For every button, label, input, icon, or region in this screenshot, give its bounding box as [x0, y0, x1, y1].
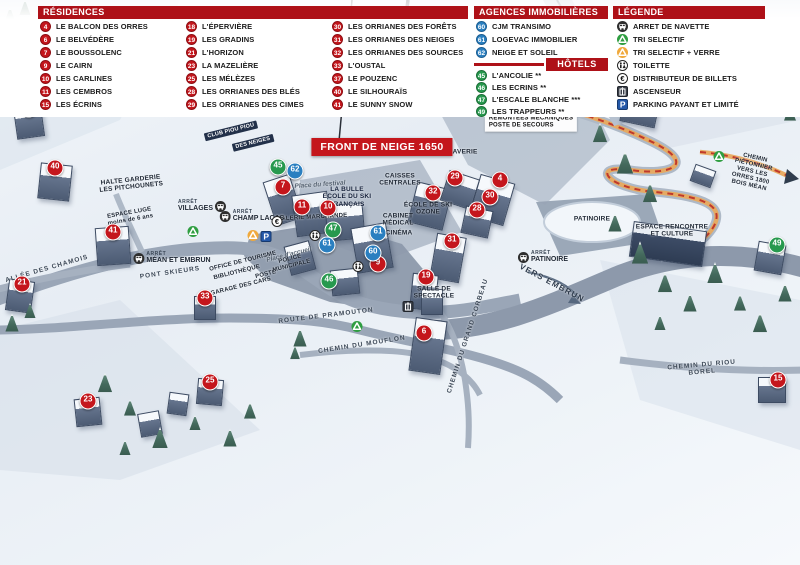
legend-item-number: 33 [332, 60, 343, 71]
legend-item-label: LOGEVAC IMMOBILIER [492, 35, 577, 44]
legend-item-label: LE SUNNY SNOW [348, 100, 413, 109]
legend-item-les-orrianes-des-neiges: 31LES ORRIANES DES NEIGES [332, 33, 455, 45]
legende-header: LÉGENDE [613, 6, 765, 19]
parking-icon: P [261, 231, 272, 242]
map-marker-41: 41 [105, 224, 122, 241]
map-marker-62: 62 [287, 163, 304, 180]
legend-item-label: ASCENSEUR [633, 87, 681, 96]
map-lift-icon [403, 299, 414, 317]
legend-item-l-horizon: 21L'HORIZON [186, 46, 244, 58]
legend-item-les-orrianes-des-for-ts: 30LES ORRIANES DES FORÊTS [332, 20, 457, 32]
bus-stop-icon [518, 252, 529, 263]
wc-icon [310, 230, 321, 241]
legend-item-number: 40 [332, 86, 343, 97]
map-marker-10: 10 [320, 200, 337, 217]
map-recycle-icon [188, 224, 199, 242]
legend-item-label: LES ÉCRINS [56, 100, 102, 109]
legend-item-label: LES GRADINS [202, 35, 254, 44]
legend-item-number: 60 [476, 21, 487, 32]
legend-item-label: L'ESCALE BLANCHE *** [492, 95, 580, 104]
legend-item-label: CJM TRANSIMO [492, 22, 551, 31]
bus-icon [617, 21, 628, 32]
map-marker-49: 49 [769, 237, 786, 254]
legend-item-le-cairn: 9LE CAIRN [40, 59, 92, 71]
legend-item-l-escale-blanche: 47L'ESCALE BLANCHE *** [476, 93, 580, 105]
map-label-espace-rencontre: ESPACE RENCONTRE ET CULTURE [636, 224, 708, 239]
legend-item-l-pervi-re: 18L'ÉPERVIÈRE [186, 20, 252, 32]
map-label-cole-de-ski: ÉCOLE DE SKI OZONE [404, 202, 452, 217]
legend-item-label: LES MÉLÈZES [202, 74, 255, 83]
recycle-icon [617, 34, 628, 45]
legend-item-label: DISTRIBUTEUR DE BILLETS [633, 74, 737, 83]
wc-icon [617, 60, 628, 71]
legend-item-la-mazeli-re: 23LA MAZELIÈRE [186, 59, 258, 71]
legend-item-label: LES ORRIANES DES BLÉS [202, 87, 300, 96]
parking-icon: P [617, 99, 628, 110]
legend-item-number: 21 [186, 47, 197, 58]
legend-item-number: 18 [186, 21, 197, 32]
bus-stop-name: MÉAN ET EMBRUN [146, 257, 210, 264]
resort-map-poster: ESPACE LUGE à partir de 7 ansTÉLÉSKI DU … [0, 0, 800, 565]
legend-item-label: TOILETTE [633, 61, 670, 70]
legend-item-label: LE BELVÉDÈRE [56, 35, 114, 44]
legend-item-neige-et-soleil: 62NEIGE ET SOLEIL [476, 46, 558, 58]
legend-item-les-trappeurs: 49LES TRAPPEURS ** [476, 106, 564, 118]
legend-item-le-boussolenc: 7LE BOUSSOLENC [40, 46, 122, 58]
map-marker-6: 6 [416, 325, 433, 342]
map-marker-31: 31 [444, 233, 461, 250]
map-marker-28: 28 [469, 202, 486, 219]
legend-item-number: 32 [332, 47, 343, 58]
legend-item-label: L'OUSTAL [348, 61, 385, 70]
legend-item-les-m-l-zes: 25LES MÉLÈZES [186, 72, 255, 84]
map-marker-61: 61 [370, 225, 387, 242]
legend-item-number: 23 [186, 60, 197, 71]
legend-item-les-cembros: 11LES CEMBROS [40, 86, 112, 98]
legend-item-label: LE BOUSSOLENC [56, 48, 122, 57]
legend-item-label: L'HORIZON [202, 48, 244, 57]
residences-header: RÉSIDENCES [38, 6, 468, 19]
map-marker-30: 30 [482, 189, 499, 206]
map-label-salle-de: SALLE DE SPECTACLE [414, 286, 455, 301]
map-label-patinoire: PATINOIRE [574, 215, 610, 222]
lift-icon [617, 86, 628, 97]
legend-item-number: 9 [40, 60, 51, 71]
legend-item-ascenseur: ASCENSEUR [617, 85, 681, 97]
legend-item-number: 28 [186, 86, 197, 97]
map-label-laverie: LAVERIE [448, 148, 477, 155]
legend-item-number: 37 [332, 73, 343, 84]
legend-item-number: 19 [186, 34, 197, 45]
legend-item-les-crins: 15LES ÉCRINS [40, 99, 102, 111]
legend-item-number: 11 [40, 86, 51, 97]
legend-item-parking-payant-et-limit: PPARKING PAYANT ET LIMITÉ [617, 98, 739, 110]
legend-item-label: LES ORRIANES DES FORÊTS [348, 22, 457, 31]
legend-item-les-gradins: 19LES GRADINS [186, 33, 254, 45]
bus-stop-icon [133, 253, 144, 264]
svg-text:P: P [263, 232, 269, 242]
legend-item-arret-de-navette: ARRET DE NAVETTE [617, 20, 709, 32]
legend-item-number: 6 [40, 34, 51, 45]
map-recycle-icon [352, 319, 363, 337]
map-marker-46: 46 [321, 273, 338, 290]
legend-item-number: 62 [476, 47, 487, 58]
legend-item-label: LA MAZELIÈRE [202, 61, 258, 70]
map-marker-32: 32 [425, 185, 442, 202]
legend-item-label: LES CARLINES [56, 74, 112, 83]
map-marker-40: 40 [47, 160, 64, 177]
hotels-header: HÔTELS [546, 58, 608, 71]
legend-item-le-pouzenc: 37LE POUZENC [332, 72, 397, 84]
legend-item-l-ancolie: 45L'ANCOLIE ** [476, 69, 541, 81]
legend-item-les-orrianes-des-cimes: 29LES ORRIANES DES CIMES [186, 99, 304, 111]
legend-panel: RÉSIDENCES AGENCES IMMOBILIÈRES LÉGENDE … [0, 0, 800, 117]
wc-icon [353, 261, 364, 272]
map-marker-4: 4 [492, 172, 509, 189]
bus-stop-icon [220, 211, 231, 222]
legend-item-number: 29 [186, 99, 197, 110]
legend-item-label: L'ÉPERVIÈRE [202, 22, 252, 31]
map-recycle-icon [714, 149, 725, 167]
triverre-icon [248, 230, 259, 241]
legend-item-label: LES ORRIANES DES CIMES [202, 100, 304, 109]
legend-item-le-balcon-des-orres: 4LE BALCON DES ORRES [40, 20, 148, 32]
legend-item-le-belv-d-re: 6LE BELVÉDÈRE [40, 33, 114, 45]
legend-item-number: 47 [476, 94, 487, 105]
agences-header: AGENCES IMMOBILIÈRES [474, 6, 608, 19]
map-triverre-icon [248, 228, 259, 246]
legend-item-number: 7 [40, 47, 51, 58]
legend-item-number: 45 [476, 70, 487, 81]
legend-item-number: 49 [476, 106, 487, 117]
map-parking-icon: P [261, 229, 272, 247]
legend-item-number: 10 [40, 73, 51, 84]
map-marker-45: 45 [270, 159, 287, 176]
bus-stop-name: PATINOIRE [531, 256, 568, 263]
bus-stop-m-an-et-embrun: ARRÊTMÉAN ET EMBRUN [133, 252, 210, 264]
map-marker-23: 23 [80, 393, 97, 410]
map-marker-25: 25 [202, 374, 219, 391]
legend-item-number: 4 [40, 21, 51, 32]
map-label-cin-ma: CINÉMA [386, 229, 413, 236]
legend-item-les-carlines: 10LES CARLINES [40, 72, 112, 84]
legend-item-label: LE BALCON DES ORRES [56, 22, 148, 31]
map-marker-29: 29 [447, 170, 464, 187]
legend-item-distributeur-de-billets: €DISTRIBUTEUR DE BILLETS [617, 72, 737, 84]
bus-stop-name: VILLAGES [178, 205, 213, 212]
euro-icon: € [272, 216, 283, 227]
legend-item-le-sunny-snow: 41LE SUNNY SNOW [332, 99, 413, 111]
legend-item-tri-selectif: TRI SELECTIF [617, 33, 685, 45]
map-building [167, 392, 190, 417]
triverre-icon [617, 47, 628, 58]
svg-text:P: P [620, 99, 626, 109]
legend-item-tri-selectif-verre: TRI SELECTIF + VERRE [617, 46, 720, 58]
legend-item-label: LES ECRINS ** [492, 83, 546, 92]
lift-icon [403, 301, 414, 312]
legend-item-label: LE CAIRN [56, 61, 92, 70]
legend-item-label: LE POUZENC [348, 74, 397, 83]
map-label-caisses: CAISSES CENTRALES [379, 173, 421, 188]
map-marker-61: 61 [319, 237, 336, 254]
map-marker-60: 60 [365, 245, 382, 262]
legend-item-number: 15 [40, 99, 51, 110]
euro-icon: € [617, 73, 628, 84]
legend-item-label: LES ORRIANES DES NEIGES [348, 35, 455, 44]
legend-item-number: 41 [332, 99, 343, 110]
map-marker-11: 11 [294, 199, 311, 216]
bus-stop-patinoire: ARRÊTPATINOIRE [518, 251, 568, 263]
legend-item-number: 30 [332, 21, 343, 32]
legend-item-number: 46 [476, 82, 487, 93]
bus-stop-text: ARRÊTMÉAN ET EMBRUN [146, 252, 210, 264]
map-marker-33: 33 [197, 290, 214, 307]
legend-item-label: TRI SELECTIF [633, 35, 685, 44]
map-marker-7: 7 [275, 179, 292, 196]
front-de-neige-banner: FRONT DE NEIGE 1650 [311, 138, 452, 156]
legend-item-le-silhoura-s: 40LE SILHOURAÏS [332, 86, 407, 98]
legend-item-les-ecrins: 46LES ECRINS ** [476, 81, 546, 93]
legend-item-number: 31 [332, 34, 343, 45]
legend-item-label: LES TRAPPEURS ** [492, 107, 564, 116]
map-marker-21: 21 [14, 276, 31, 293]
legend-item-logevac-immobilier: 61LOGEVAC IMMOBILIER [476, 33, 577, 45]
legend-item-label: NEIGE ET SOLEIL [492, 48, 558, 57]
legend-item-label: PARKING PAYANT ET LIMITÉ [633, 100, 739, 109]
legend-item-label: TRI SELECTIF + VERRE [633, 48, 720, 57]
legend-item-number: 25 [186, 73, 197, 84]
legend-item-label: LES ORRIANES DES SOURCES [348, 48, 463, 57]
map-marker-15: 15 [770, 372, 787, 389]
bus-stop-text: ARRÊTVILLAGES [178, 200, 213, 212]
map-euro-icon: € [272, 214, 283, 232]
recycle-icon [714, 151, 725, 162]
legend-item-label: ARRET DE NAVETTE [633, 22, 709, 31]
hotels-divider [474, 63, 544, 66]
legend-item-label: LE SILHOURAÏS [348, 87, 407, 96]
legend-item-number: 61 [476, 34, 487, 45]
legend-item-cjm-transimo: 60CJM TRANSIMO [476, 20, 551, 32]
legend-item-label: L'ANCOLIE ** [492, 71, 541, 80]
recycle-icon [352, 321, 363, 332]
recycle-icon [188, 226, 199, 237]
legend-item-label: LES CEMBROS [56, 87, 112, 96]
map-wc-icon [353, 259, 364, 277]
legend-item-les-orrianes-des-sources: 32LES ORRIANES DES SOURCES [332, 46, 463, 58]
legend-item-toilette: TOILETTE [617, 59, 670, 71]
bus-stop-text: ARRÊTPATINOIRE [531, 251, 568, 263]
legend-item-l-oustal: 33L'OUSTAL [332, 59, 385, 71]
map-marker-19: 19 [418, 269, 435, 286]
legend-item-les-orrianes-des-bl-s: 28LES ORRIANES DES BLÉS [186, 86, 300, 98]
